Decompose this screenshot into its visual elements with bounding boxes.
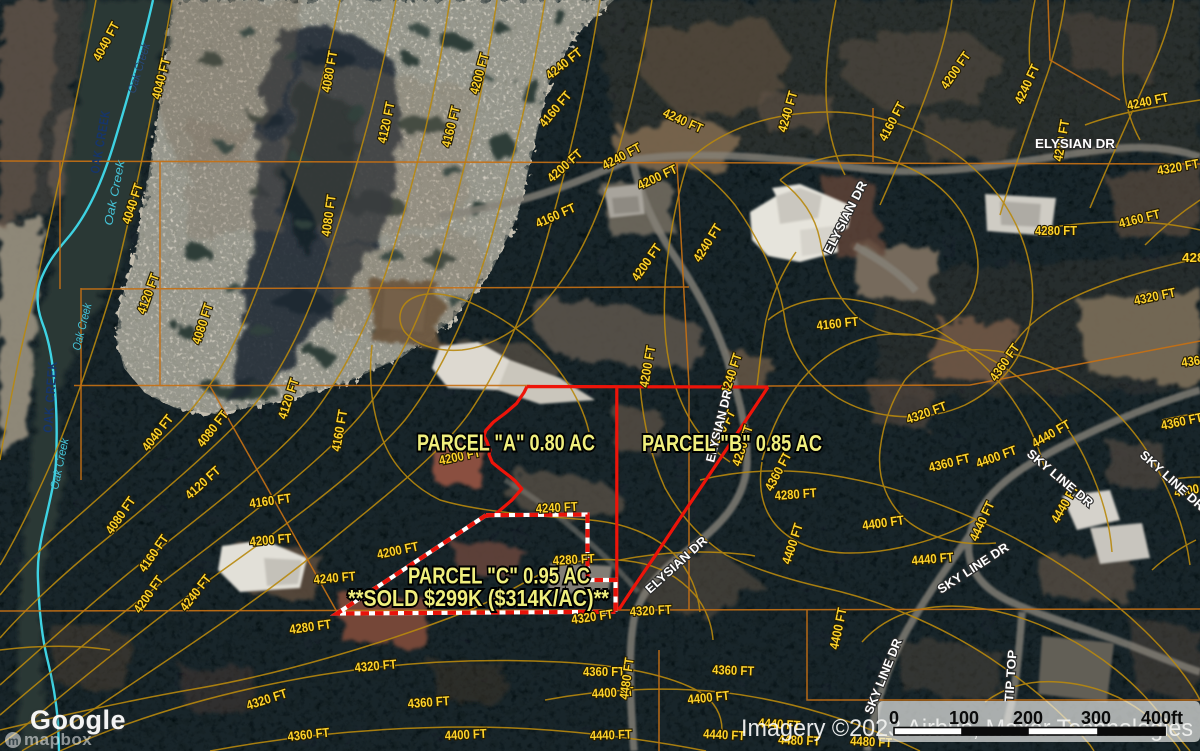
svg-text:PARCEL "A" 0.80 AC: PARCEL "A" 0.80 AC [417,430,595,456]
svg-text:ELYSIAN DR: ELYSIAN DR [1035,137,1115,151]
svg-text:4440 FT: 4440 FT [590,727,633,743]
svg-text:4280 F: 4280 F [1182,250,1200,265]
svg-text:4400 FT: 4400 FT [444,726,487,743]
svg-text:4280 FT: 4280 FT [1035,223,1077,238]
svg-text:300: 300 [1081,708,1111,728]
svg-text:200: 200 [1013,708,1043,728]
svg-text:m: m [8,734,19,748]
svg-text:PARCEL "B" 0.85 AC: PARCEL "B" 0.85 AC [642,430,822,456]
svg-text:0: 0 [889,708,899,728]
svg-text:4240 FT: 4240 FT [535,499,578,516]
svg-text:4280 FT: 4280 FT [774,485,817,503]
svg-text:100: 100 [949,708,979,728]
svg-text:4440 FT: 4440 FT [703,726,746,743]
svg-text:4360 FT: 4360 FT [712,662,755,678]
svg-text:**SOLD $299K ($314K/AC)**: **SOLD $299K ($314K/AC)** [348,585,609,611]
svg-text:mapbox: mapbox [24,730,92,749]
svg-text:4360 FT: 4360 FT [407,693,450,711]
svg-text:400ft: 400ft [1141,708,1183,728]
svg-text:4320 FT: 4320 FT [629,602,672,619]
